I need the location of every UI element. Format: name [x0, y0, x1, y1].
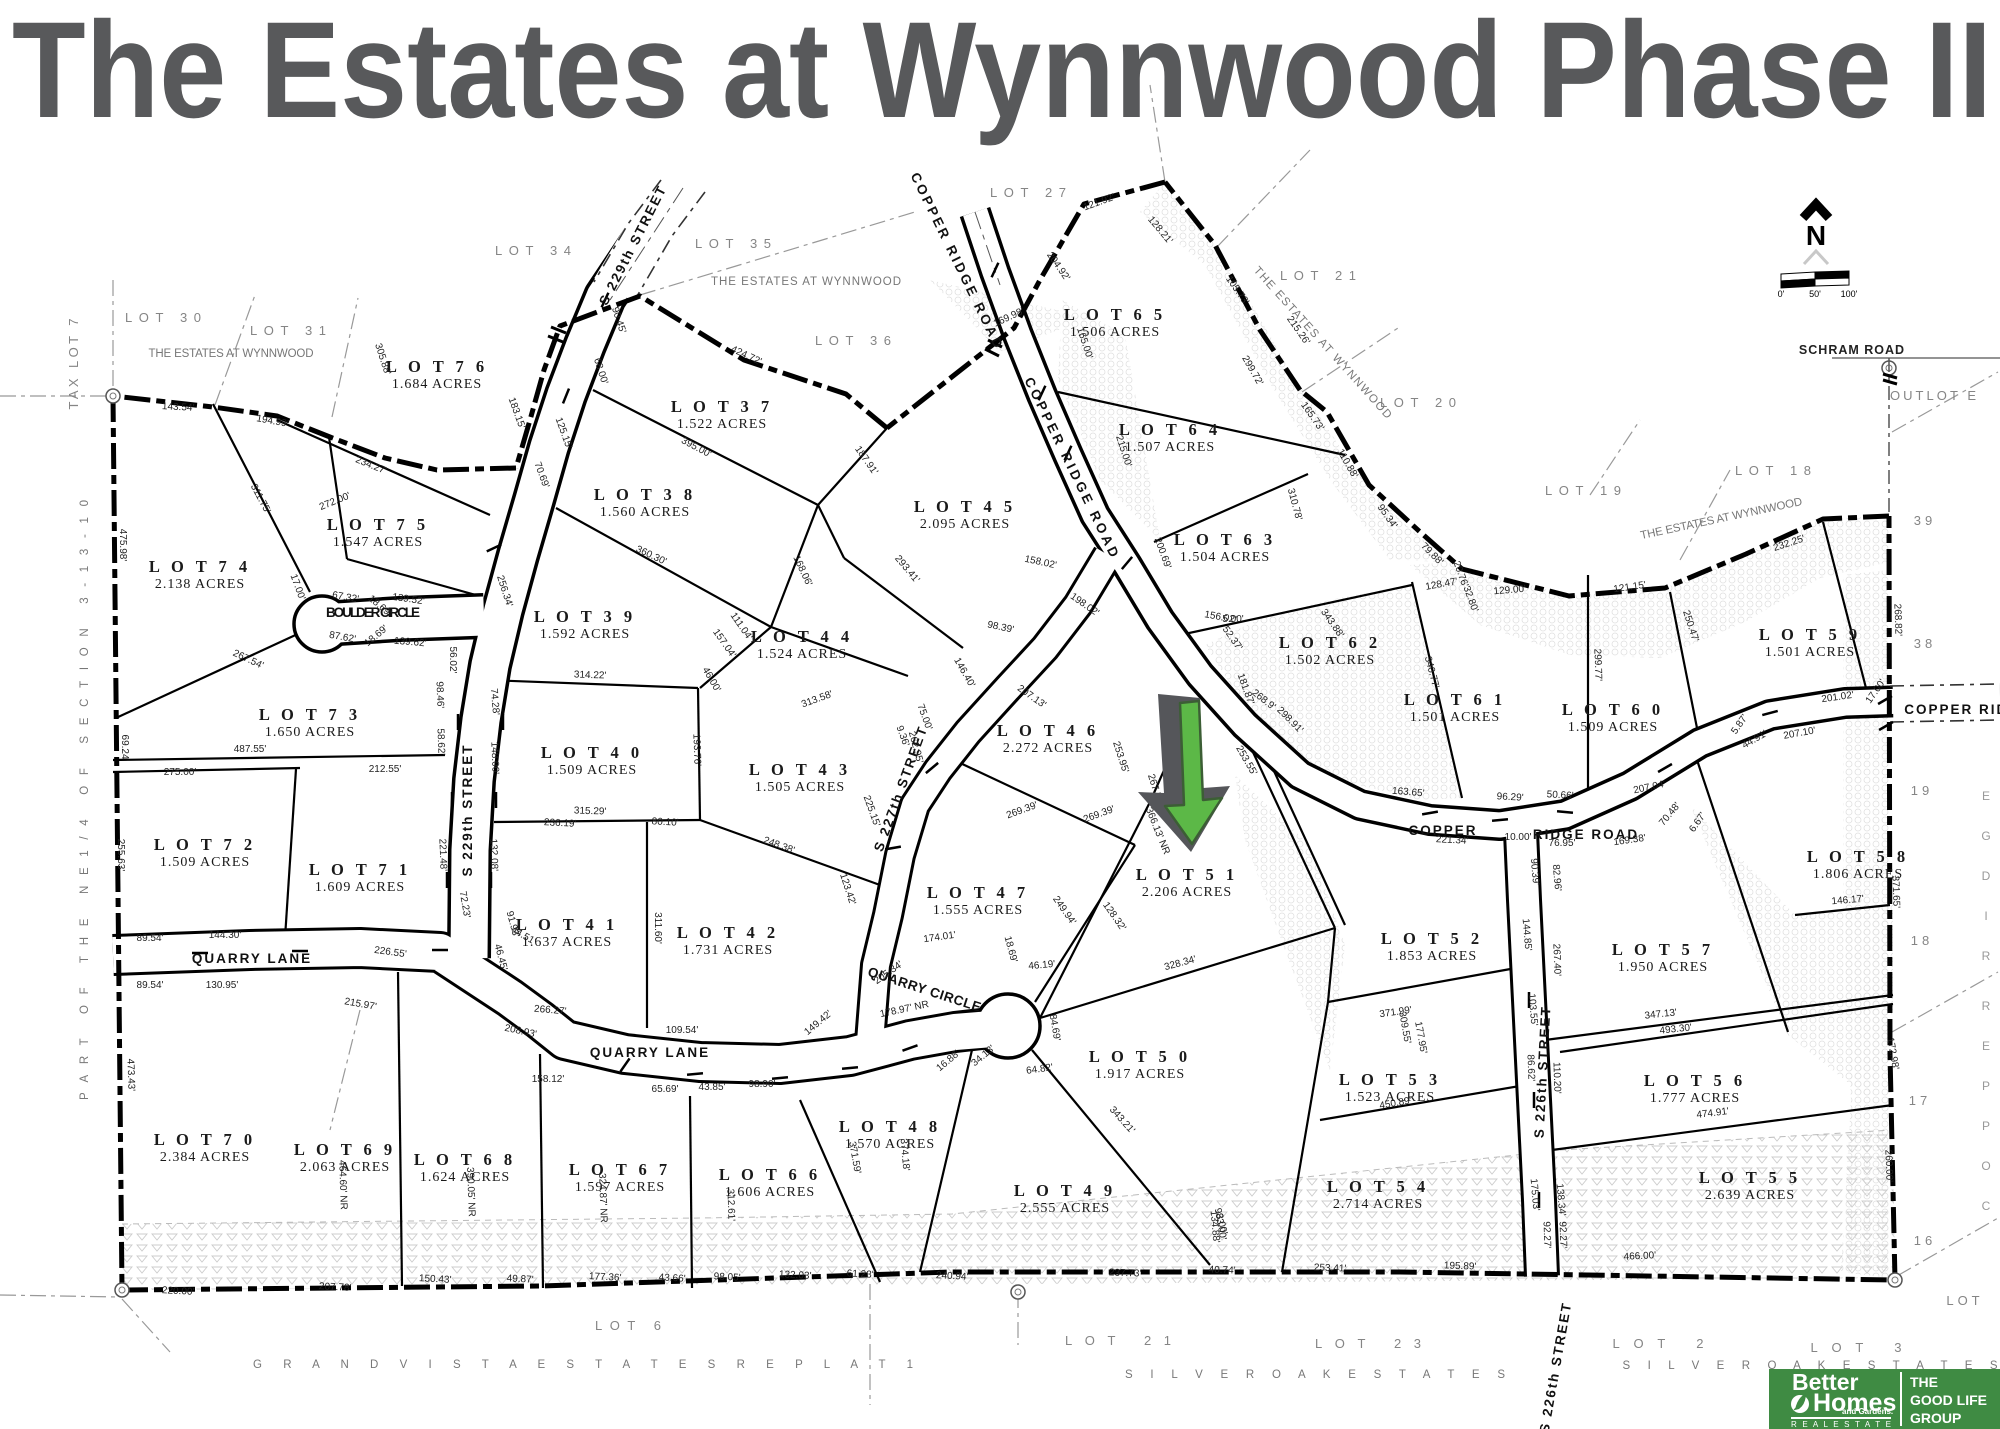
svg-text:L O T 3 8: L O T 3 8 [594, 485, 696, 504]
svg-text:L O T 4 2: L O T 4 2 [677, 923, 779, 942]
svg-text:L O T 4 9: L O T 4 9 [1014, 1181, 1116, 1200]
svg-text:89.54': 89.54' [137, 933, 164, 944]
svg-text:76.95': 76.95' [1549, 838, 1576, 849]
svg-text:L O T 7 3: L O T 7 3 [259, 705, 361, 724]
svg-text:I: I [1984, 909, 1987, 923]
svg-text:315.29': 315.29' [574, 805, 607, 817]
svg-text:240.94': 240.94' [936, 1270, 969, 1283]
svg-text:L O T 7 2: L O T 7 2 [154, 835, 256, 854]
svg-text:1.777 ACRES: 1.777 ACRES [1650, 1091, 1740, 1106]
svg-text:143.54': 143.54' [162, 401, 195, 414]
svg-text:E: E [1982, 1039, 1990, 1053]
svg-text:N: N [1806, 220, 1826, 251]
svg-text:QUARRY LANE: QUARRY LANE [590, 1045, 710, 1060]
svg-text:GROUP: GROUP [1910, 1410, 1961, 1426]
svg-text:43.66': 43.66' [658, 1272, 686, 1284]
svg-text:158.12': 158.12' [532, 1074, 565, 1085]
svg-text:0': 0' [1778, 289, 1785, 299]
svg-text:109.54': 109.54' [666, 1025, 699, 1036]
svg-text:98.90': 98.90' [749, 1079, 776, 1090]
svg-text:1.560 ACRES: 1.560 ACRES [600, 505, 690, 520]
svg-text:18: 18 [1911, 933, 1933, 948]
svg-text:LOT 6: LOT 6 [595, 1318, 665, 1333]
svg-text:The Estates at Wynnwood Phase: The Estates at Wynnwood Phase II [12, 0, 1992, 147]
svg-text:S 229th STREET: S 229th STREET [460, 743, 475, 876]
svg-text:L O T 6 3: L O T 6 3 [1174, 530, 1276, 549]
svg-text:1.731 ACRES: 1.731 ACRES [683, 943, 773, 958]
svg-text:1.509 ACRES: 1.509 ACRES [1568, 720, 1658, 735]
svg-text:1.547 ACRES: 1.547 ACRES [333, 535, 423, 550]
svg-text:and Gardens.: and Gardens. [1842, 1407, 1893, 1416]
svg-text:90.39': 90.39' [1528, 858, 1541, 886]
svg-text:221.34': 221.34' [1436, 834, 1469, 847]
svg-text:212.55': 212.55' [369, 764, 402, 775]
svg-text:390.05' NR: 390.05' NR [464, 1167, 477, 1217]
svg-text:40.74': 40.74' [1208, 1265, 1235, 1277]
svg-text:L O T 7 5: L O T 7 5 [327, 515, 429, 534]
svg-text:1.609 ACRES: 1.609 ACRES [315, 880, 405, 895]
svg-text:1.597 ACRES: 1.597 ACRES [575, 1180, 665, 1195]
svg-text:144.30': 144.30' [209, 930, 242, 941]
svg-text:1.509 ACRES: 1.509 ACRES [160, 855, 250, 870]
svg-text:L O T 7 6: L O T 7 6 [386, 357, 488, 376]
svg-text:2.555 ACRES: 2.555 ACRES [1020, 1201, 1110, 1216]
svg-text:50': 50' [1809, 289, 1821, 299]
svg-text:L O T 5 5: L O T 5 5 [1699, 1168, 1801, 1187]
svg-text:89.54': 89.54' [137, 980, 164, 991]
svg-text:SCHRAM ROAD: SCHRAM ROAD [1799, 343, 1905, 357]
svg-text:TAX LOT 7: TAX LOT 7 [66, 315, 81, 410]
svg-text:80.10': 80.10' [651, 816, 679, 828]
svg-text:L O T 3 7: L O T 3 7 [671, 397, 773, 416]
svg-text:O: O [1981, 1159, 1990, 1173]
svg-text:L O T 7 4: L O T 7 4 [149, 557, 251, 576]
svg-text:19: 19 [1911, 783, 1933, 798]
svg-text:98.05': 98.05' [713, 1271, 741, 1283]
svg-text:L O T 4 5: L O T 4 5 [914, 497, 1016, 516]
svg-text:38: 38 [1914, 636, 1936, 651]
svg-text:98.46': 98.46' [434, 681, 446, 708]
svg-text:1.606 ACRES: 1.606 ACRES [725, 1185, 815, 1200]
svg-text:P: P [1982, 1079, 1990, 1093]
svg-text:L O T 5 1: L O T 5 1 [1136, 865, 1238, 884]
svg-text:2.138 ACRES: 2.138 ACRES [155, 577, 245, 592]
svg-text:49.87': 49.87' [506, 1273, 534, 1285]
svg-text:1.555 ACRES: 1.555 ACRES [933, 903, 1023, 918]
svg-text:92.27': 92.27' [1557, 1221, 1569, 1248]
svg-text:86.62': 86.62' [1525, 1054, 1537, 1081]
svg-text:L O T 6 2: L O T 6 2 [1279, 633, 1381, 652]
svg-text:L O T 4 6: L O T 4 6 [997, 721, 1099, 740]
svg-text:L O T 6 4: L O T 6 4 [1119, 420, 1221, 439]
svg-text:L O T 6 1: L O T 6 1 [1404, 690, 1506, 709]
svg-text:260.00': 260.00' [1882, 1149, 1894, 1182]
svg-text:69.24': 69.24' [119, 735, 130, 762]
svg-text:193.76': 193.76' [690, 733, 702, 766]
svg-text:132.03': 132.03' [779, 1269, 812, 1282]
svg-text:L O T 5 2: L O T 5 2 [1381, 929, 1483, 948]
svg-text:312.61': 312.61' [724, 1188, 736, 1221]
svg-text:E: E [1982, 789, 1990, 803]
svg-text:61.23': 61.23' [846, 1268, 874, 1280]
svg-text:L O T 6 6: L O T 6 6 [719, 1165, 821, 1184]
svg-text:L O T 6 8: L O T 6 8 [414, 1150, 516, 1169]
svg-text:2.714 ACRES: 2.714 ACRES [1333, 1197, 1423, 1212]
svg-text:G: G [1981, 829, 1990, 843]
svg-text:268.82': 268.82' [1891, 603, 1903, 636]
svg-text:311.60': 311.60' [652, 912, 663, 944]
svg-text:148.00': 148.00' [488, 741, 500, 774]
svg-text:R: R [1982, 999, 1991, 1013]
svg-text:17: 17 [1909, 1093, 1931, 1108]
svg-text:253.41': 253.41' [1314, 1262, 1347, 1274]
svg-text:466.00': 466.00' [1623, 1250, 1656, 1263]
svg-text:56.02': 56.02' [447, 647, 458, 674]
svg-text:195.89': 195.89' [1444, 1260, 1477, 1272]
svg-text:58.62': 58.62' [435, 728, 447, 755]
svg-text:L O T 7 1: L O T 7 1 [309, 860, 411, 879]
svg-text:74.28': 74.28' [488, 688, 501, 716]
svg-text:R: R [1982, 949, 1991, 963]
svg-text:1.650 ACRES: 1.650 ACRES [265, 725, 355, 740]
svg-text:1.522 ACRES: 1.522 ACRES [677, 417, 767, 432]
svg-text:220.00': 220.00' [162, 1285, 195, 1298]
svg-text:L O T 7 0: L O T 7 0 [154, 1130, 256, 1149]
svg-text:16: 16 [1914, 1233, 1936, 1248]
svg-text:464.60' NR: 464.60' NR [336, 1160, 349, 1210]
svg-text:P: P [1982, 1119, 1990, 1133]
svg-text:275.00': 275.00' [164, 767, 197, 778]
svg-text:299.77': 299.77' [1591, 648, 1603, 681]
svg-text:10.00': 10.00' [1505, 832, 1532, 843]
svg-text:2.639 ACRES: 2.639 ACRES [1705, 1188, 1795, 1203]
svg-text:110.20': 110.20' [1550, 1062, 1562, 1094]
svg-text:L O T 5 9: L O T 5 9 [1759, 625, 1861, 644]
svg-text:50.66': 50.66' [1546, 789, 1574, 801]
svg-text:GOOD LIFE: GOOD LIFE [1910, 1392, 1987, 1408]
svg-text:43.85': 43.85' [699, 1082, 726, 1093]
svg-text:2.272 ACRES: 2.272 ACRES [1003, 741, 1093, 756]
svg-text:324.87' NR: 324.87' NR [596, 1173, 609, 1223]
svg-text:221.48': 221.48' [436, 838, 448, 871]
svg-text:COPPER RIDGE: COPPER RIDGE [1904, 702, 2000, 717]
svg-text:236.19': 236.19' [544, 817, 577, 830]
svg-text:L O T 6 5: L O T 6 5 [1064, 305, 1166, 324]
svg-text:1.524 ACRES: 1.524 ACRES [757, 647, 847, 662]
svg-text:THE ESTATES AT WYNNWOOD: THE ESTATES AT WYNNWOOD [149, 348, 314, 360]
svg-text:132.08': 132.08' [487, 838, 499, 871]
svg-text:L O T 4 8: L O T 4 8 [839, 1117, 941, 1136]
svg-text:46.19': 46.19' [1028, 959, 1056, 972]
svg-text:237.73': 237.73' [1109, 1267, 1142, 1279]
svg-text:L O T 4 7: L O T 4 7 [927, 883, 1029, 902]
svg-text:1.917 ACRES: 1.917 ACRES [1095, 1067, 1185, 1082]
svg-text:1.502 ACRES: 1.502 ACRES [1285, 653, 1375, 668]
svg-text:1.501 ACRES: 1.501 ACRES [1410, 710, 1500, 725]
svg-text:96.29': 96.29' [1496, 791, 1524, 803]
svg-text:2.384 ACRES: 2.384 ACRES [160, 1150, 250, 1165]
svg-text:L O T 5 7: L O T 5 7 [1612, 940, 1714, 959]
svg-text:1.950 ACRES: 1.950 ACRES [1618, 960, 1708, 975]
svg-text:1.509 ACRES: 1.509 ACRES [547, 763, 637, 778]
svg-text:2.095 ACRES: 2.095 ACRES [920, 517, 1010, 532]
svg-text:L O T 3 9: L O T 3 9 [534, 607, 636, 626]
svg-text:L O T 4 3: L O T 4 3 [749, 760, 851, 779]
svg-text:267.40': 267.40' [1550, 943, 1562, 976]
svg-text:L O T 4 0: L O T 4 0 [541, 743, 643, 762]
svg-text:L O T 6 7: L O T 6 7 [569, 1160, 671, 1179]
svg-text:L O T 6 9: L O T 6 9 [294, 1140, 396, 1159]
svg-text:5.00': 5.00' [1222, 614, 1243, 625]
svg-text:1.684 ACRES: 1.684 ACRES [392, 377, 482, 392]
svg-text:L O T 5 3: L O T 5 3 [1339, 1070, 1441, 1089]
svg-text:D: D [1982, 869, 1991, 883]
svg-text:473.43': 473.43' [124, 1058, 136, 1091]
svg-text:LOT: LOT [1946, 1293, 1983, 1308]
svg-text:82.96': 82.96' [1550, 864, 1563, 892]
svg-text:65.69': 65.69' [652, 1084, 679, 1095]
svg-text:487.55': 487.55' [234, 744, 267, 755]
svg-text:1.853 ACRES: 1.853 ACRES [1387, 949, 1477, 964]
svg-text:L O T 5 0: L O T 5 0 [1089, 1047, 1191, 1066]
svg-text:177.36': 177.36' [589, 1271, 622, 1284]
svg-text:1.507 ACRES: 1.507 ACRES [1125, 440, 1215, 455]
svg-text:THE ESTATES AT WYNNWOOD: THE ESTATES AT WYNNWOOD [711, 276, 901, 288]
svg-text:C: C [1982, 1199, 1991, 1213]
svg-text:L O T 5 8: L O T 5 8 [1807, 847, 1909, 866]
svg-text:2.206 ACRES: 2.206 ACRES [1142, 885, 1232, 900]
svg-text:L O T 5 6: L O T 5 6 [1644, 1071, 1746, 1090]
svg-text:L O T 5 4: L O T 5 4 [1327, 1177, 1429, 1196]
svg-text:100': 100' [1841, 289, 1858, 299]
svg-text:150.43': 150.43' [419, 1273, 452, 1286]
svg-text:255.63': 255.63' [115, 839, 126, 872]
svg-text:L O T 4 4: L O T 4 4 [751, 627, 853, 646]
svg-text:39: 39 [1914, 513, 1936, 528]
svg-text:THE: THE [1910, 1374, 1938, 1390]
svg-text:207.78': 207.78' [319, 1281, 352, 1294]
svg-text:475.98': 475.98' [117, 529, 128, 562]
svg-text:1.592 ACRES: 1.592 ACRES [540, 627, 630, 642]
svg-text:130.95': 130.95' [206, 980, 239, 991]
svg-text:371.65': 371.65' [1889, 875, 1901, 908]
svg-text:92.27': 92.27' [1541, 1221, 1553, 1248]
svg-text:R E A L E S T A T E: R E A L E S T A T E [1791, 1420, 1891, 1429]
svg-text:L O T 4 1: L O T 4 1 [516, 915, 618, 934]
svg-text:314.22': 314.22' [574, 669, 607, 681]
svg-text:QUARRY LANE: QUARRY LANE [192, 951, 312, 966]
svg-text:1.501 ACRES: 1.501 ACRES [1765, 645, 1855, 660]
svg-text:1.504 ACRES: 1.504 ACRES [1180, 550, 1270, 565]
svg-text:L O T 6 0: L O T 6 0 [1562, 700, 1664, 719]
svg-text:OUTLOT E: OUTLOT E [1890, 388, 1980, 403]
svg-text:1.505 ACRES: 1.505 ACRES [755, 780, 845, 795]
